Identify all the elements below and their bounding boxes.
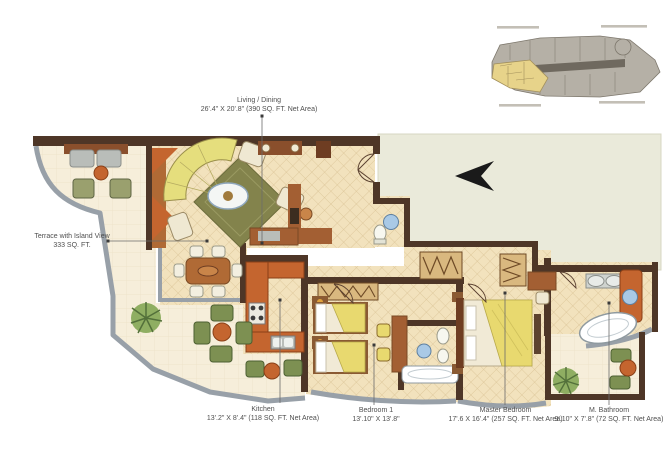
- label-m-bathroom: M. Bathroom 9'.10" X 7'.8" (72 SQ. FT. N…: [540, 407, 668, 425]
- desk-chair: [377, 348, 390, 361]
- basin: [384, 215, 399, 230]
- terrace-coffee-set: [246, 360, 302, 379]
- toilet: [437, 328, 449, 344]
- label-m-bathroom-title: M. Bathroom: [540, 407, 668, 416]
- key-plan-caption: [601, 25, 647, 28]
- dining-chair: [232, 264, 242, 277]
- kitchen-counter: [268, 262, 304, 278]
- label-kitchen: Kitchen 13'.2" X 8'.4" (118 SQ. FT. Net …: [193, 406, 333, 424]
- stove: [249, 303, 265, 324]
- dining-chair: [190, 286, 203, 297]
- dining-chair: [212, 246, 225, 257]
- side-table: [300, 208, 312, 220]
- terrace-chair: [610, 376, 630, 389]
- label-living-dining-dims: 26'.4" X 20'.8" (390 SQ. FT. Net Area): [184, 106, 334, 115]
- desk-chair: [377, 324, 390, 337]
- label-bedroom1-title: Bedroom 1: [326, 407, 426, 416]
- dining-chair: [174, 264, 184, 277]
- terrace-chair: [110, 179, 131, 198]
- master-bed: [456, 298, 541, 368]
- label-bedroom1: Bedroom 1 13'.10" X 13'.8": [326, 407, 426, 425]
- key-plan-caption: [599, 101, 645, 104]
- key-plan-caption: [497, 26, 539, 29]
- dining-chair: [212, 286, 225, 297]
- dining-chair: [190, 246, 203, 257]
- floorplan-page: Living / Dining 26'.4" X 20'.8" (390 SQ.…: [0, 0, 668, 452]
- label-kitchen-dims: 13'.2" X 8'.4" (118 SQ. FT. Net Area): [193, 415, 333, 424]
- bed-bench: [534, 314, 541, 354]
- bidet: [438, 349, 449, 363]
- terrace-table: [94, 166, 108, 180]
- label-living-dining: Living / Dining 26'.4" X 20'.8" (390 SQ.…: [184, 97, 334, 115]
- label-bedroom1-dims: 13'.10" X 13'.8": [326, 416, 426, 425]
- sink: [588, 276, 604, 287]
- label-terrace: Terrace with Island View 333 SQ. FT.: [11, 233, 133, 251]
- label-terrace-title: Terrace with Island View: [11, 233, 133, 242]
- twin-bed: [313, 302, 368, 334]
- chair: [536, 292, 549, 304]
- dresser: [528, 272, 556, 290]
- basin: [623, 290, 638, 305]
- label-living-dining-title: Living / Dining: [184, 97, 334, 106]
- terrace-chair: [73, 179, 94, 198]
- floorplan-drawing: [0, 0, 668, 452]
- hall-cabinet: [316, 141, 331, 158]
- key-plan-caption: [499, 104, 541, 107]
- label-kitchen-title: Kitchen: [193, 406, 333, 415]
- hall-closet: [420, 252, 462, 279]
- desk: [392, 316, 407, 372]
- basin: [417, 344, 431, 358]
- key-plan: [492, 25, 660, 107]
- terrace-table: [620, 360, 636, 376]
- label-terrace-dims: 333 SQ. FT.: [11, 242, 133, 251]
- twin-bed: [313, 340, 368, 374]
- label-m-bathroom-dims: 9'.10" X 7'.8" (72 SQ. FT. Net Area): [540, 416, 668, 425]
